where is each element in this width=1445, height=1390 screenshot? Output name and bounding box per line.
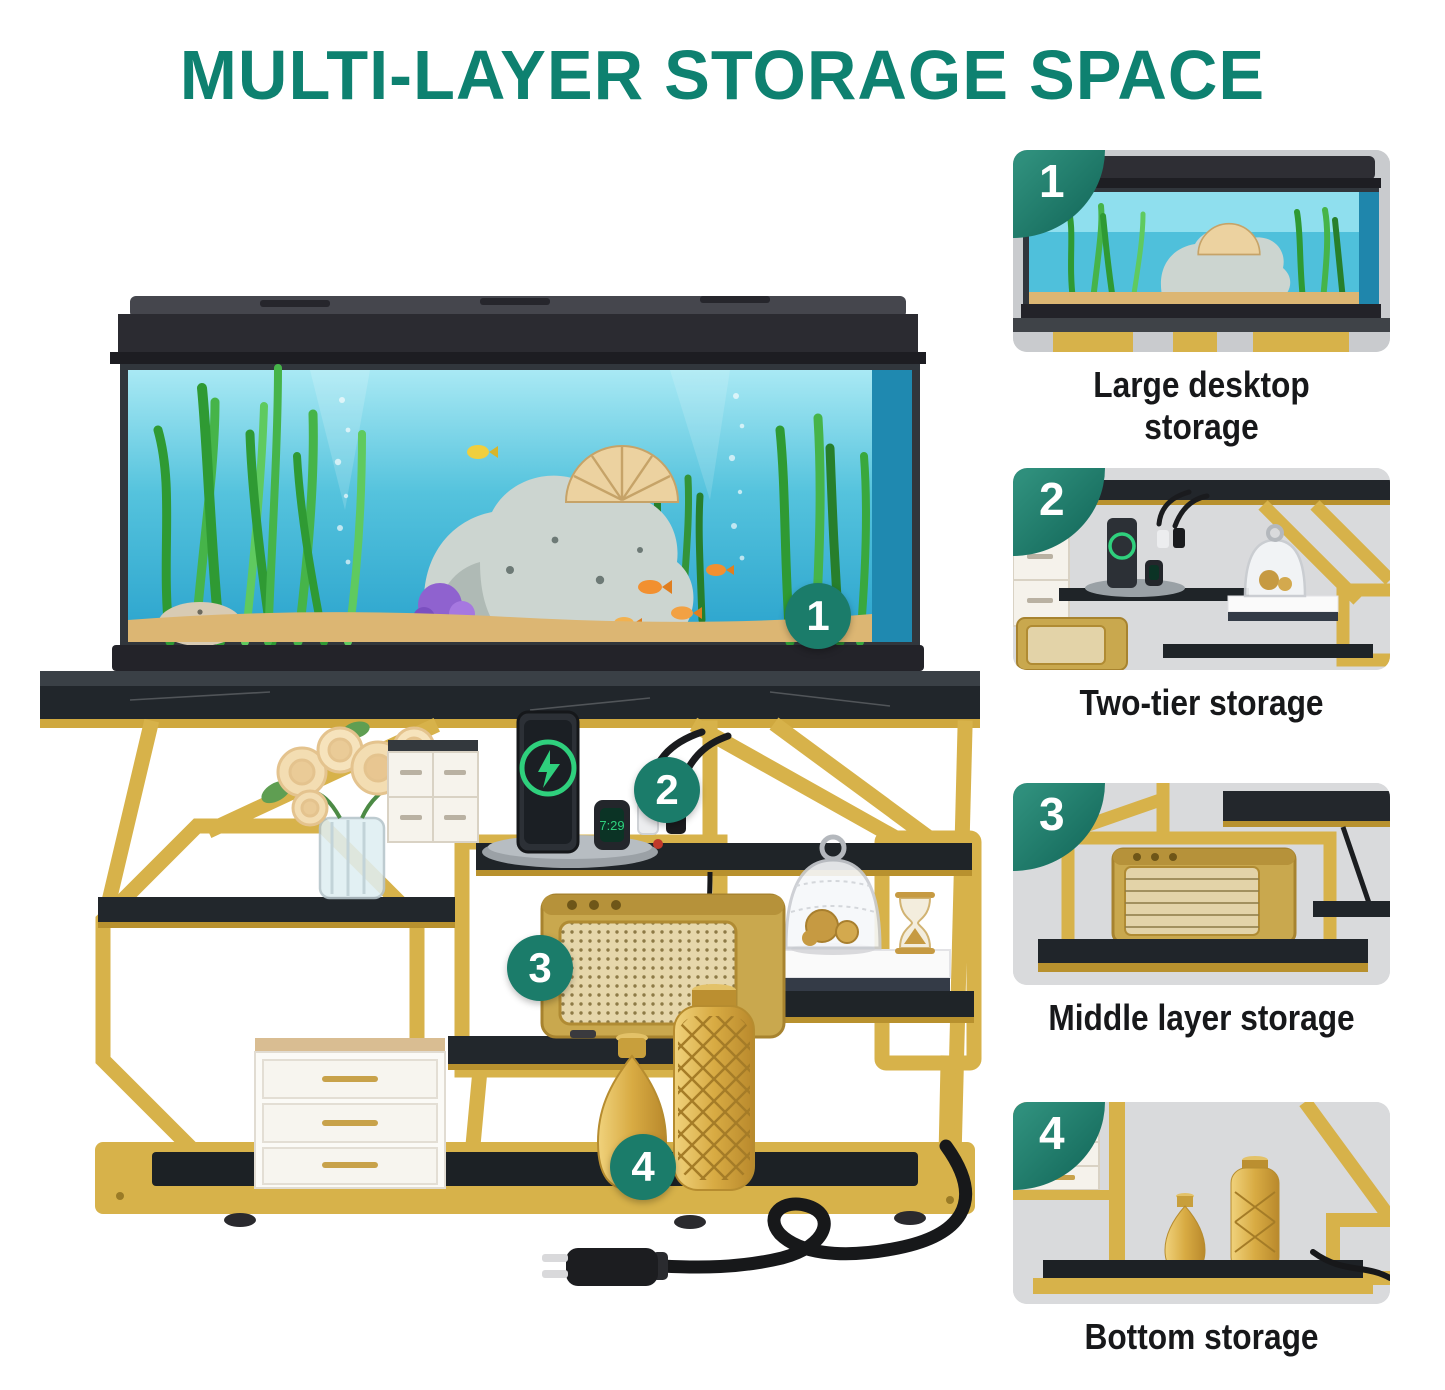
feature-caption-3: Middle layer storage	[1036, 997, 1368, 1039]
feature-card-1: 1 Large desktop storage	[1013, 150, 1390, 448]
feature-image-4: 4	[1013, 1102, 1390, 1304]
feature-card-4: 4 Bottom storage	[1013, 1102, 1390, 1358]
stand-tabletop	[40, 671, 980, 728]
fish-tank-lid	[110, 296, 926, 364]
main-product-illustration: 7:29	[10, 100, 1010, 1390]
callout-badge-1: 1	[785, 583, 851, 649]
stand-base	[95, 1142, 975, 1229]
corner-number-4: 4	[1039, 1106, 1065, 1160]
main-product-image: 7:29	[10, 100, 1010, 1390]
feature-image-3: 3	[1013, 783, 1390, 985]
corner-number-1: 1	[1039, 154, 1065, 208]
feature-caption-1: Large desktop storage	[1036, 364, 1368, 448]
product-infographic: MULTI-LAYER STORAGE SPACE	[0, 0, 1445, 1390]
callout-badge-2: 2	[634, 757, 700, 823]
watch-time: 7:29	[599, 818, 624, 833]
hourglass	[895, 892, 935, 954]
corner-number-3: 3	[1039, 787, 1065, 841]
feature-image-2: 2	[1013, 468, 1390, 670]
feature-image-1: 1	[1013, 150, 1390, 352]
feature-caption-2: Two-tier storage	[1036, 682, 1368, 724]
feature-card-2: 2 Two-tier storage	[1013, 468, 1390, 724]
feature-card-3: 3 Middle layer storage	[1013, 783, 1390, 1039]
corner-number-2: 2	[1039, 472, 1065, 526]
feature-caption-4: Bottom storage	[1036, 1316, 1368, 1358]
callout-badge-4: 4	[610, 1134, 676, 1200]
callout-badge-3: 3	[507, 935, 573, 1001]
three-drawer-cabinet	[255, 1038, 445, 1188]
mini-drawer-box	[388, 740, 478, 842]
